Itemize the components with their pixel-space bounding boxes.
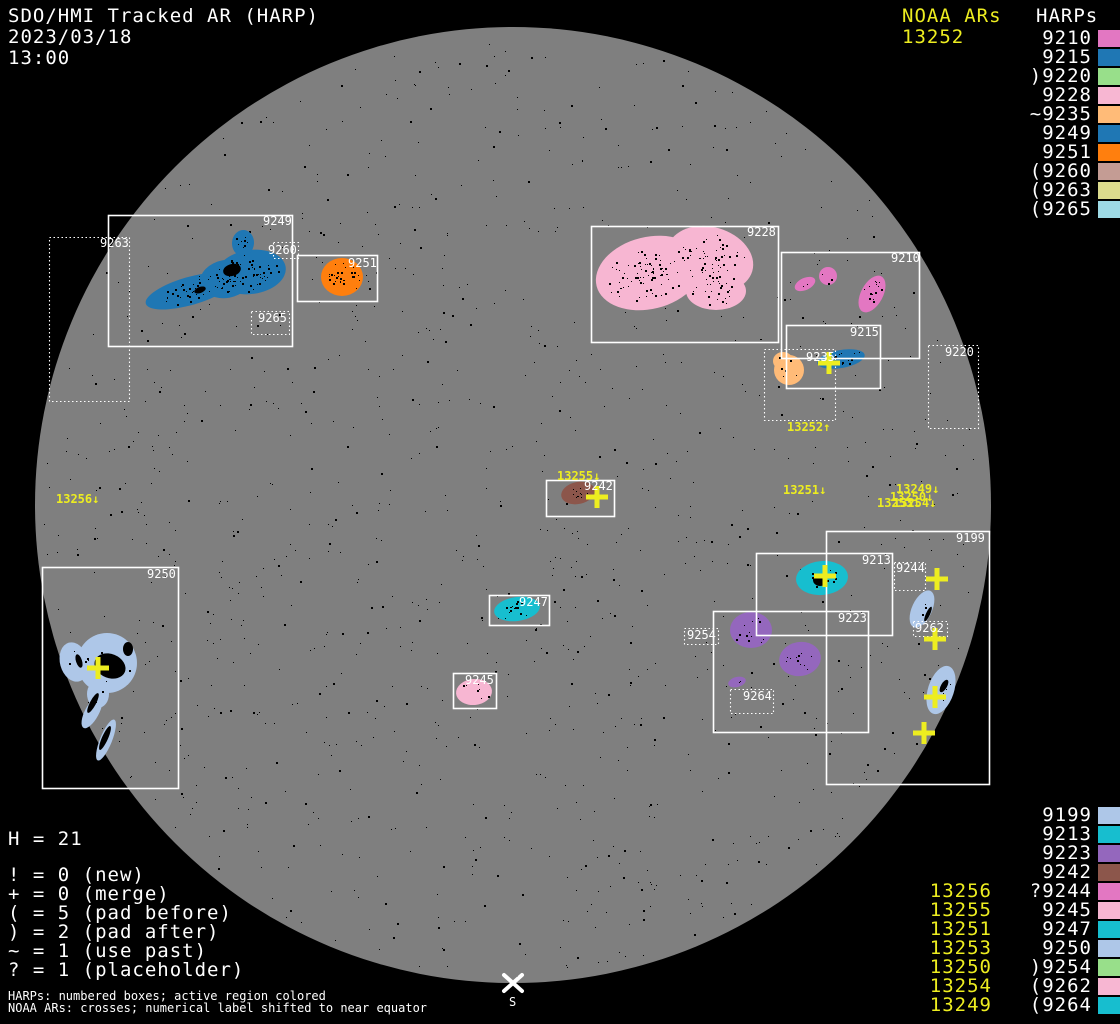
noaa-ars-header-block: NOAA ARs 13252: [902, 6, 1002, 48]
harps-header: HARPs: [1036, 6, 1100, 27]
title-block: SDO/HMI Tracked AR (HARP) 2023/03/18 13:…: [8, 6, 319, 69]
footnote-noaa: NOAA ARs: crosses; numerical label shift…: [8, 1002, 427, 1014]
sdo-hmi-harp-plot: 9249926392609251926592289210921592359220…: [0, 0, 1120, 1024]
noaa-current-label: 13252: [902, 27, 1002, 48]
harp-count: H = 21: [8, 829, 83, 850]
solar-disk: [35, 27, 991, 983]
solar-disk-canvas: [0, 0, 1120, 1024]
south-pole-label: S: [509, 996, 516, 1008]
page-title: SDO/HMI Tracked AR (HARP): [8, 6, 319, 27]
noaa-ars-header: NOAA ARs: [902, 6, 1002, 27]
ar-blob-9251: [321, 258, 363, 296]
time-label: 13:00: [8, 48, 319, 69]
date-label: 2023/03/18: [8, 27, 319, 48]
